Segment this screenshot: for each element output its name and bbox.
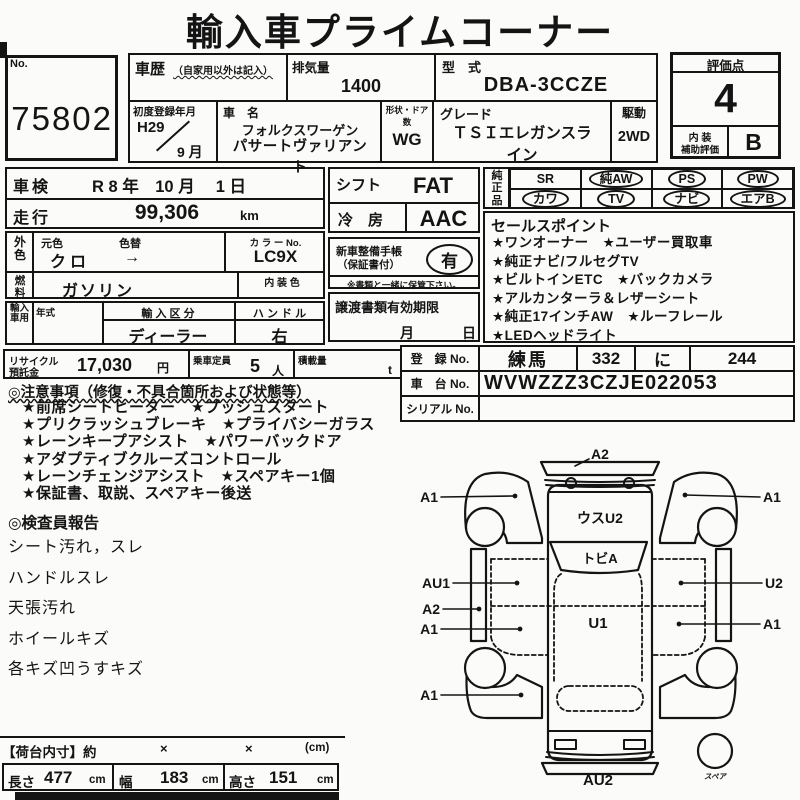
- diagram-label-spare: スペア: [704, 772, 727, 781]
- cargo-sep2: ×: [245, 741, 253, 756]
- cargo-length-unit: cm: [89, 774, 106, 786]
- oem-label: 純正品: [489, 170, 505, 207]
- registration-kana-cell: に: [634, 345, 691, 372]
- rating-score: 4: [673, 76, 778, 120]
- diagram-label-left-1: AU1: [422, 575, 450, 591]
- mileage-label: 走行: [13, 204, 51, 228]
- diagram-label-left-4: A1: [420, 687, 438, 703]
- serial-label-cell: シリアル No.: [400, 395, 480, 422]
- original-color-value: クロ: [50, 248, 90, 272]
- interior-label-cell: 内 装 補助評価: [673, 127, 729, 156]
- diagram-label-cabin: U1: [588, 615, 607, 632]
- registration-label-cell: 登 録 No.: [400, 345, 480, 372]
- note-line: ★アダプティブクルーズコントロール: [22, 451, 375, 468]
- first-registration-era: H29: [137, 119, 165, 136]
- transfer-docs-label: 譲渡書類有効期限: [335, 297, 439, 316]
- sales-point-line: ★純正ナビ/フルセグTV: [492, 253, 791, 272]
- note-line: ★前席シートヒーター ★プッシュスタート: [22, 399, 375, 416]
- first-registration-box: 初度登録年月 H29 9 月: [128, 100, 218, 163]
- note-line: ★保証書、取説、スペアキー後送: [22, 485, 375, 502]
- ac-label: 冷 房: [338, 209, 383, 230]
- capacity-value: 5: [250, 356, 260, 377]
- drive-box: 駆動 2WD: [610, 100, 658, 163]
- registration-number-cell: 244: [689, 345, 795, 372]
- inspector-report-list: シート汚れ，スレ ハンドルスレ 天張汚れ ホイールキズ 各キズ凹うすキズ: [8, 533, 144, 686]
- cargo-length-value: 477: [44, 768, 72, 788]
- service-booklet-value: 有: [426, 244, 473, 275]
- diagram-label-a2-top: A2: [591, 446, 609, 462]
- diagram-label-left-0: A1: [420, 489, 438, 505]
- displacement-label: 排気量: [292, 57, 330, 76]
- recycle-unit: 円: [157, 359, 169, 376]
- report-line: シート汚れ，スレ: [8, 533, 144, 564]
- oem-item-airb: エアB: [722, 189, 793, 209]
- chassis-label-cell: 車 台 No.: [400, 370, 480, 397]
- cargo-header: 【荷台内寸】約: [2, 741, 97, 761]
- diagram-label-hood: ウスU2: [577, 510, 623, 526]
- cargo-length-cell: 長さ 477 cm: [2, 763, 114, 791]
- exterior-color-label: 外色: [10, 236, 30, 262]
- fuel-label: 燃料: [11, 276, 29, 299]
- sales-points-title: セールスポイント: [491, 215, 611, 236]
- history-box: 車歴 （自家用以外は記入）: [128, 53, 288, 102]
- ac-value: AAC: [407, 206, 480, 232]
- diagram-label-windshield: トビA: [582, 551, 618, 566]
- inspection-label: 車検: [13, 173, 51, 197]
- cargo-unit: (cm): [305, 742, 329, 754]
- rating-label: 評価点: [673, 55, 778, 73]
- oem-label-cell: 純正品: [485, 169, 510, 207]
- fuel-value: ガソリン: [62, 277, 134, 301]
- inspector-report-title: ◎検査員報告: [8, 511, 99, 533]
- cargo-sep1: ×: [160, 741, 168, 756]
- first-registration-label: 初度登録年月: [133, 104, 196, 119]
- transfer-docs-box: 譲渡書類有効期限 月 日: [328, 292, 480, 342]
- notes-list: ★前席シートヒーター ★プッシュスタート ★プリクラッシュブレーキ ★プライバシ…: [22, 399, 375, 502]
- shift-ac-box: シフト FAT 冷 房 AAC: [328, 167, 480, 233]
- displacement-value: 1400: [288, 76, 434, 97]
- sales-point-line: ★ワンオーナー ★ユーザー買取車: [492, 234, 791, 253]
- cargo-width-cell: 幅 183 cm: [112, 763, 225, 791]
- registration-kana: に: [654, 346, 671, 371]
- auction-sheet: 輸入車プライムコーナー No. 75802 車歴 （自家用以外は記入） 排気量 …: [0, 0, 800, 800]
- diagram-label-au2-bottom: AU2: [583, 772, 613, 789]
- sales-point-line: ★アルカンターラ＆レザーシート: [492, 290, 791, 309]
- grade-box: グレード ＴＳＩエレガンスライン: [432, 100, 612, 163]
- first-registration-month: 9 月: [177, 142, 203, 162]
- sales-point-line: ★LEDヘッドライト: [492, 327, 791, 346]
- registration-label: 登 録 No.: [411, 350, 470, 367]
- oem-grid: SR 純AW PS PW カワ TV ナビ エアB: [510, 169, 793, 207]
- color-change-arrow: →: [124, 249, 140, 267]
- cargo-length-label: 長さ: [8, 771, 35, 791]
- oem-item-pw: PW: [722, 169, 793, 189]
- interior-color-label: 内 装 色: [239, 274, 325, 289]
- service-booklet-note: ※書類と一緒に保管下さい。: [330, 278, 478, 291]
- report-line: ハンドルスレ: [8, 564, 144, 595]
- registration-area-cell: 練馬: [478, 345, 578, 372]
- sales-points-list: ★ワンオーナー ★ユーザー買取車 ★純正ナビ/フルセグTV ★ビルトインETC …: [492, 234, 791, 345]
- mileage-unit: km: [240, 208, 259, 223]
- oem-item-sr: SR: [510, 169, 581, 189]
- sales-point-line: ★ビルトインETC ★バックカメラ: [492, 271, 791, 290]
- cargo-width-label: 幅: [119, 771, 133, 791]
- drive-label: 駆動: [612, 104, 656, 121]
- note-line: ★プリクラッシュブレーキ ★プライバシーガラス: [22, 416, 375, 433]
- import-use-label: 輸入車用: [10, 304, 29, 323]
- serial-label: シリアル No.: [406, 401, 474, 417]
- serial-value-cell: [478, 395, 795, 422]
- cargo-width-unit: cm: [202, 774, 219, 786]
- interior-label-line2: 補助評価: [673, 142, 727, 156]
- displacement-box: 排気量 1400: [286, 53, 436, 102]
- capacity-box: 乗車定員 5 人: [188, 349, 295, 379]
- diagram-label-right-2: A1: [763, 616, 781, 632]
- cargo-header-row: 【荷台内寸】約 × × (cm): [2, 741, 342, 761]
- chassis-value: WVWZZZ3CZJE022053: [484, 372, 718, 395]
- capacity-label: 乗車定員: [193, 353, 231, 367]
- registration-area: 練馬: [508, 346, 548, 372]
- load-box: 積載量 t: [293, 349, 402, 379]
- rating-bottom-row: 内 装 補助評価 B: [673, 125, 778, 156]
- vehicle-damage-diagram: A2 ウスU2 トビA U1 AU2 A1 AU1 A2 A1 A1 A1 U2…: [405, 441, 797, 793]
- capacity-unit: 人: [272, 362, 284, 379]
- recycle-label2: 預託金: [9, 364, 39, 379]
- registration-class-cell: 332: [576, 345, 636, 372]
- mileage-value: 99,306: [107, 201, 227, 225]
- note-line: ★レーンキープアシスト ★パワーバックドア: [22, 433, 375, 450]
- registration-class: 332: [592, 349, 620, 369]
- import-box: 輸入車用 年式 輸 入 区 分 ディーラー ハ ン ド ル 右: [5, 301, 325, 345]
- inspection-value: R 8 年 10 月 1 日: [92, 173, 246, 197]
- service-booklet-box: 新車整備手帳 （保証書付） 有 ※書類と一緒に保管下さい。: [328, 237, 480, 289]
- shift-label: シフト: [336, 174, 381, 195]
- handle-value: 右: [234, 323, 325, 347]
- note-line: ★レーンチェンジアシスト ★スペアキー1個: [22, 468, 375, 485]
- report-line: 各キズ凹うすキズ: [8, 655, 144, 686]
- grade-value: ＴＳＩエレガンスライン: [447, 121, 597, 165]
- shift-value: FAT: [388, 173, 478, 199]
- cargo-width-value: 183: [160, 768, 188, 788]
- oem-item-aw: 純AW: [581, 169, 652, 189]
- load-label: 積載量: [298, 353, 327, 367]
- load-unit: t: [388, 363, 392, 377]
- chassis-label: 車 台 No.: [411, 375, 470, 392]
- cargo-height-value: 151: [269, 768, 297, 788]
- diagram-label-right-1: U2: [765, 575, 783, 591]
- history-note: （自家用以外は記入）: [173, 62, 273, 77]
- model-code-box: 型 式 DBA-3CCZE: [434, 53, 658, 102]
- body-door-label: 形状・ドア数: [383, 104, 431, 128]
- history-label: 車歴: [135, 58, 165, 79]
- report-line: ホイールキズ: [8, 625, 144, 656]
- lot-number-label: No.: [10, 58, 28, 70]
- cargo-height-unit: cm: [317, 774, 334, 786]
- report-line: 天張汚れ: [8, 594, 144, 625]
- model-code-value: DBA-3CCZE: [436, 74, 656, 97]
- year-label: 年式: [36, 305, 55, 319]
- cargo-height-cell: 高さ 151 cm: [223, 763, 339, 791]
- rating-box: 評価点 4 内 装 補助評価 B: [670, 52, 781, 159]
- body-door-value: WG: [382, 130, 432, 150]
- recycle-value: 17,030: [77, 355, 132, 376]
- import-class-value: ディーラー: [102, 323, 234, 347]
- transfer-day-label: 日: [462, 323, 476, 343]
- drive-value: 2WD: [612, 129, 656, 145]
- page-title: 輸入車プライムコーナー: [0, 2, 800, 56]
- sales-points-box: セールスポイント ★ワンオーナー ★ユーザー買取車 ★純正ナビ/フルセグTV ★…: [483, 211, 795, 343]
- bottom-bar: [15, 792, 339, 800]
- car-name-label: 車 名: [223, 104, 259, 121]
- import-class-label: 輸 入 区 分: [102, 305, 234, 321]
- transfer-month-label: 月: [400, 323, 414, 343]
- diagram-label-right-0: A1: [763, 489, 781, 505]
- lot-number-box: No. 75802: [5, 55, 118, 161]
- interior-grade-value: B: [729, 129, 778, 156]
- chassis-value-cell: WVWZZZ3CZJE022053: [478, 370, 795, 397]
- oem-equipment-box: 純正品 SR 純AW PS PW カワ TV ナビ エアB: [483, 167, 795, 209]
- car-name-box: 車 名 フォルクスワーゲン パサートヴァリアント: [216, 100, 382, 163]
- oem-item-navi: ナビ: [652, 189, 723, 209]
- registration-number: 244: [728, 349, 756, 369]
- handle-label: ハ ン ド ル: [234, 305, 325, 321]
- diagram-label-left-3: A1: [420, 621, 438, 637]
- oem-item-ps: PS: [652, 169, 723, 189]
- inspection-mileage-box: 車検 R 8 年 10 月 1 日 走行 99,306 km: [5, 167, 325, 229]
- service-booklet-label2: （保証書付）: [337, 257, 400, 272]
- color-no-value: LC9X: [226, 247, 325, 267]
- body-door-box: 形状・ドア数 WG: [380, 100, 434, 163]
- oem-item-tv: TV: [581, 189, 652, 209]
- sales-point-line: ★純正17インチAW ★ルーフレール: [492, 308, 791, 327]
- recycle-box: リサイクル 預託金 17,030 円: [3, 349, 190, 379]
- diagram-label-left-2: A2: [422, 601, 440, 617]
- oem-item-kawa: カワ: [510, 189, 581, 209]
- color-fuel-box: 外色 燃料 元色 色替 クロ → カ ラ ー No. LC9X ガソリン 内 装…: [5, 231, 325, 299]
- cargo-height-label: 高さ: [229, 771, 256, 791]
- lot-number-value: 75802: [8, 100, 113, 138]
